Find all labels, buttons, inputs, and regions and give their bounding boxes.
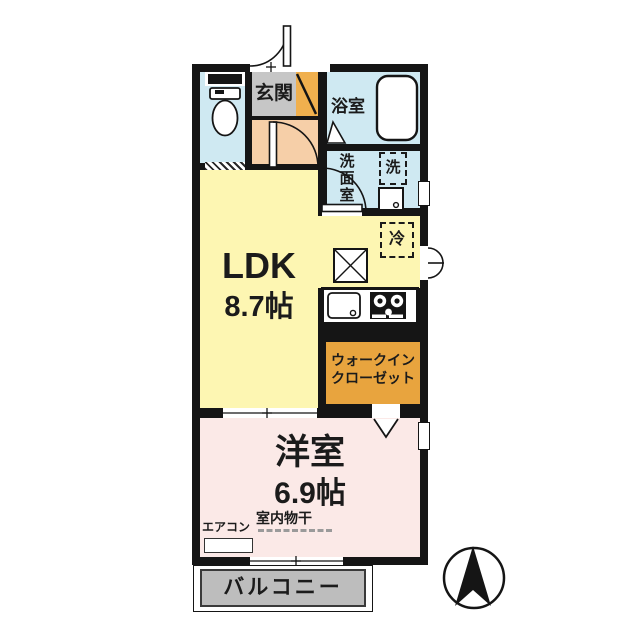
bedroom-size: 6.9帖 — [200, 477, 420, 510]
fridge-label: 冷 — [389, 231, 405, 249]
washroom-window — [418, 181, 430, 206]
floor-plan: 玄関 浴室 洗面室 ウォークイン クローゼット LDK 8.7帖 洋室 6.9帖… — [0, 0, 640, 640]
compass-north-icon — [444, 546, 504, 608]
toilet-door — [205, 162, 245, 170]
laundry-label: 室内物干 — [256, 511, 312, 526]
vanity-unit — [378, 187, 404, 211]
fridge-box: 冷 — [380, 222, 414, 258]
entrance-label: 玄関 — [255, 84, 293, 105]
bathroom-label: 浴室 — [331, 98, 365, 117]
closet-label: ウォークイン クローゼット — [326, 351, 420, 387]
kitchen-counter — [321, 287, 419, 325]
kitchen-door-opening — [420, 246, 428, 280]
kitchen-door-arc — [428, 248, 443, 278]
room-bathroom: 浴室 — [327, 72, 420, 144]
room-closet: ウォークイン クローゼット — [326, 342, 420, 404]
closet-label-line2: クローゼット — [326, 369, 420, 387]
washer-label: 洗 — [385, 160, 400, 177]
ldk-bedroom-sliding-door — [223, 408, 317, 418]
balcony-window — [250, 557, 343, 565]
aircon-label: エアコン — [202, 521, 250, 534]
balcony-label: バルコニー — [223, 576, 343, 599]
washer-box: 洗 — [379, 152, 407, 185]
aircon-unit — [204, 538, 253, 553]
entrance-door-opening — [250, 64, 330, 72]
entrance-hall — [252, 120, 318, 164]
closet-door-opening — [372, 404, 400, 418]
room-balcony: バルコニー — [200, 569, 366, 607]
bedroom-label: 洋室 — [200, 434, 420, 473]
bedroom-window — [418, 422, 430, 450]
shoe-cabinet — [296, 72, 318, 116]
ldk-label-block: LDK 8.7帖 — [200, 246, 318, 323]
hatch-box — [333, 248, 368, 283]
room-entrance: 玄関 — [252, 72, 296, 116]
ldk-label: LDK — [200, 246, 318, 286]
washroom-door-opening — [322, 208, 362, 216]
laundry-hooks — [258, 526, 332, 532]
bedroom-label-block: 洋室 6.9帖 — [200, 434, 420, 510]
closet-label-line1: ウォークイン — [326, 351, 420, 369]
toilet-window — [205, 72, 245, 86]
washroom-label: 洗面室 — [337, 153, 354, 204]
entrance-door-arc — [250, 29, 287, 66]
entrance-door-leaf — [284, 26, 291, 66]
ldk-size: 8.7帖 — [200, 292, 318, 324]
